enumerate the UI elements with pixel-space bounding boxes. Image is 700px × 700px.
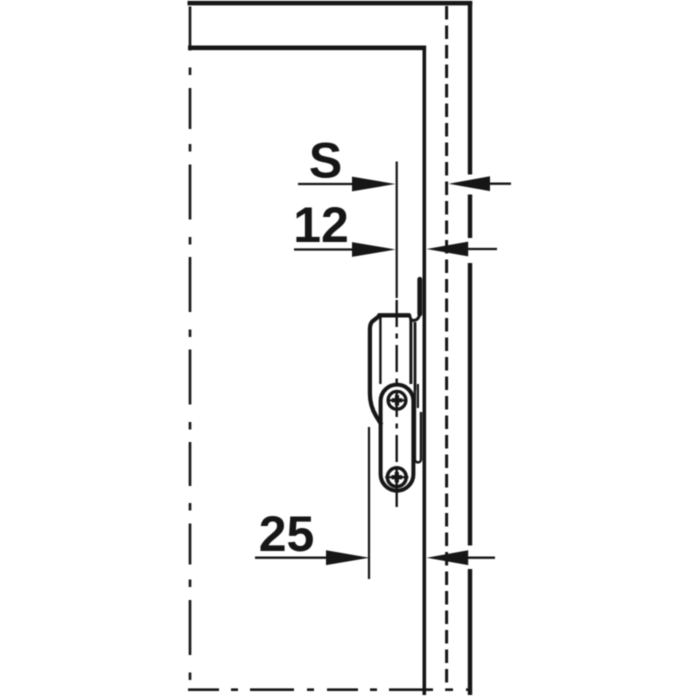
svg-text:S: S	[309, 133, 342, 189]
svg-text:12: 12	[293, 197, 349, 253]
svg-text:25: 25	[259, 506, 315, 562]
